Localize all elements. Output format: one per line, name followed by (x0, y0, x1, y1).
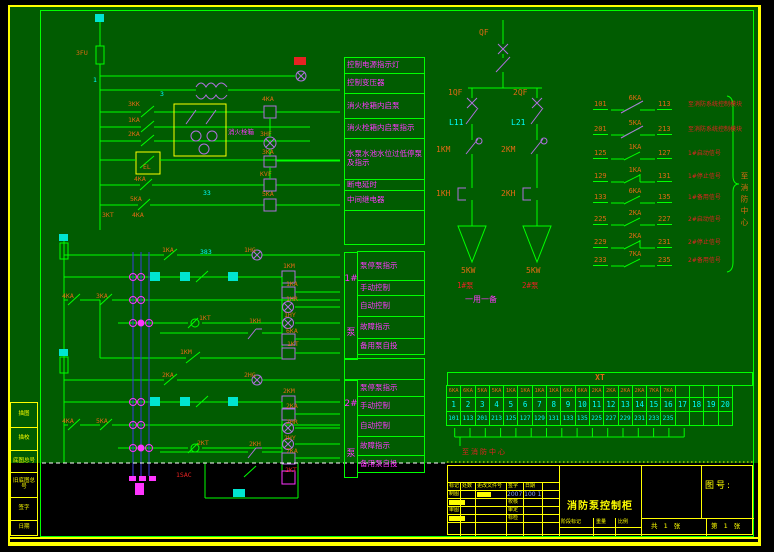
kw2-label: 5KW (526, 266, 540, 275)
terminal-number: 8 (546, 397, 561, 412)
ladder-label: 6KA (286, 328, 298, 335)
terminal-column: 5KA 4 213 (489, 386, 504, 426)
terminal-wire: 127 (517, 411, 532, 426)
terminal-column: 18 (689, 386, 704, 426)
pump2-number: 2# (344, 399, 357, 409)
terminal-column: 6KA 2 113 (460, 386, 475, 426)
terminal-number: 14 (632, 397, 647, 412)
ladder-label: 33 (203, 190, 211, 197)
terminal-column: 20 (718, 386, 733, 426)
wire-number-right: 113 (657, 100, 672, 110)
terminal-wire: 125 (503, 411, 518, 426)
wire-number-left: 101 (593, 100, 608, 110)
ladder-label: 2HR (286, 419, 298, 426)
tb-checker: 校核 (508, 500, 518, 505)
terminal-number: 12 (603, 397, 618, 412)
ladder-label: 7KA (286, 448, 298, 455)
terminal-column: 2KA 11 225 (589, 386, 604, 426)
terminal-number: 17 (675, 397, 690, 412)
contact-symbol (611, 172, 655, 186)
terminal-wire: 101 (446, 411, 461, 426)
ladder-label: 5KA (96, 418, 108, 425)
drawing-title: 消防泵控制柜 (560, 497, 640, 512)
ladder-label: 3KA (96, 293, 108, 300)
terminal-column: 5KA 3 201 (475, 386, 490, 426)
border-right (758, 5, 761, 545)
terminal-wire: 231 (632, 411, 647, 426)
terminal-number: 9 (560, 397, 575, 412)
wire-number-right: 227 (657, 215, 672, 225)
terminal-wire: 235 (660, 411, 675, 426)
contact-note: 2#停止信号 (688, 239, 746, 246)
function-row (344, 210, 425, 245)
terminal-wire: 113 (460, 411, 475, 426)
border-top (8, 5, 761, 7)
contact-note: 1#停止信号 (688, 173, 746, 180)
margin-cell: 描校 (10, 427, 38, 451)
terminal-wire: 129 (532, 411, 547, 426)
pump2-unit: 泵 (346, 446, 355, 459)
duty-standby-note: 一用一备 (465, 294, 497, 305)
ladder-label: 2KA (128, 131, 140, 138)
kw1-label: 5KW (461, 266, 475, 275)
contact-note: 1#备用信号 (688, 194, 746, 201)
contact-note: 至消防系统控制模块 (688, 126, 746, 133)
tb-header-mark: 标记 (449, 484, 459, 489)
contact-row: 201 5KA 213 至消防系统控制模块 (593, 123, 753, 143)
wire-number-right: 231 (657, 238, 672, 248)
tb-standard: 标检 (508, 516, 518, 521)
ladder-label: 1HR (286, 296, 298, 303)
terminal-column: 6KA 1 101 (446, 386, 461, 426)
wire-number-left: 129 (593, 172, 608, 182)
margin-cell: 日期 (10, 520, 38, 536)
tb-approve: 审定 (508, 508, 518, 513)
terminal-column: 2KA 13 229 (618, 386, 633, 426)
tb-date-value: 2007 100 1 (507, 491, 541, 498)
ladder-label: 1KH (249, 318, 261, 325)
tb-weight: 重量 (596, 520, 606, 525)
qf-label: QF (479, 28, 489, 37)
contact-symbol (611, 125, 655, 139)
contact-symbol (611, 193, 655, 207)
kh1-label: 1KH (436, 189, 450, 198)
terminal-number: 5 (503, 397, 518, 412)
pump2-label: 2#泵 (522, 280, 539, 291)
tb-header-count: 处数 (462, 484, 472, 489)
wire-number-right: 127 (657, 149, 672, 159)
function-row: 中间继电器 (344, 190, 425, 211)
kh2-label: 2KH (501, 189, 515, 198)
border-bottom-1 (8, 537, 761, 539)
ladder-label: 2KH (249, 441, 261, 448)
ladder-label: 1KT (199, 315, 211, 322)
wire-number-left: 229 (593, 238, 608, 248)
ladder-label: 1HY (284, 312, 296, 319)
l11-label: L11 (449, 118, 463, 127)
contact-note: 2#启动信号 (688, 216, 746, 223)
function-row: 自动控制 (357, 415, 425, 437)
tb-stage: 阶段标记 (561, 520, 581, 525)
contact-symbol (611, 256, 655, 270)
tb-header-sign: 签字 (508, 484, 518, 489)
wire-number-left: 201 (593, 125, 608, 135)
pump2-rows: 泵停泵指示手动控制自动控制故障指示备用泵自投 (357, 380, 425, 473)
contact-row: 125 1KA 127 1#启动信号 (593, 147, 753, 167)
to-fire-center-label: 至消防中心 (739, 172, 750, 230)
ladder-label: 1SAC (176, 472, 192, 479)
qf1-label: 1QF (448, 88, 462, 97)
contact-note: 至消防系统控制模块 (688, 101, 746, 108)
terminal-strip-title: XT (447, 372, 753, 386)
ladder-label: 4KA (134, 176, 146, 183)
function-row: 控制电源指示灯 (344, 57, 425, 74)
wire-number-left: 125 (593, 149, 608, 159)
pump1-label: 1#泵 (457, 280, 474, 291)
terminal-column: 1KA 8 131 (546, 386, 561, 426)
wire-number-right: 135 (657, 193, 672, 203)
contact-note: 2#备用信号 (688, 257, 746, 264)
function-row: 消火栓箱内启泵指示 (344, 118, 425, 139)
km1-label: 1KM (436, 145, 450, 154)
ladder-label: 1KA (286, 281, 298, 288)
ladder-label: 消火栓箱 (228, 129, 254, 136)
terminal-column: 1KA 7 129 (532, 386, 547, 426)
terminal-wire: 131 (546, 411, 561, 426)
terminal-wire: 233 (646, 411, 661, 426)
terminal-wire (689, 411, 704, 426)
function-row: 手动控制 (357, 396, 425, 416)
function-row: 水泵水池水位过低停泵及指示 (344, 138, 425, 180)
ladder-label: 2HY (284, 435, 296, 442)
pump1-number: 1# (344, 274, 357, 284)
terminal-column: 6KA 10 135 (575, 386, 590, 426)
wire-number-right: 131 (657, 172, 672, 182)
ladder-label: 3FU (76, 50, 88, 57)
function-row: 泵停泵指示 (357, 251, 425, 281)
contact-symbol (611, 149, 655, 163)
function-panel-gap (344, 358, 425, 380)
function-row: 控制变压器 (344, 73, 425, 94)
title-block: 标记 处数 更改文件号 签字 日期 制图 2007 100 1 校核 审图 审定… (447, 465, 753, 535)
terminal-number: 1 (446, 397, 461, 412)
function-row: 泵停泵指示 (357, 379, 425, 397)
terminal-number: 6 (517, 397, 532, 412)
function-row: 备用泵自投 (357, 338, 425, 355)
terminal-column: 17 (675, 386, 690, 426)
terminal-number: 11 (589, 397, 604, 412)
pump1-rows: 泵停泵指示手动控制自动控制故障指示备用泵自投 (357, 252, 425, 355)
ladder-label: 1KA (162, 247, 174, 254)
ladder-label: 4KA (62, 293, 74, 300)
ladder-label: 3KA (262, 149, 274, 156)
margin-cell: 底图总号 (10, 450, 38, 473)
ladder-label: 4KA (132, 212, 144, 219)
ladder-label: 5KA (262, 191, 274, 198)
ladder-label: 2HG (244, 372, 256, 379)
ladder-label: 2KA (162, 372, 174, 379)
pump1-section: 1# 泵 泵停泵指示手动控制自动控制故障指示备用泵自投 (344, 252, 425, 360)
xt-to-fire-center-label: 至消防中心 (462, 447, 507, 457)
ladder-label: 4KA (62, 418, 74, 425)
margin-cell: 签字 (10, 497, 38, 521)
terminal-number: 20 (718, 397, 733, 412)
ladder-label: 5KA (130, 196, 142, 203)
ladder-label: 3 (160, 91, 164, 98)
terminal-wire (675, 411, 690, 426)
ladder-label: 383 (200, 249, 212, 256)
terminal-strip-table: XT 6KA 1 101 6KA 2 113 5KA 3 201 (447, 372, 753, 426)
pump1-unit: 泵 (346, 325, 355, 338)
function-row: 手动控制 (357, 280, 425, 296)
wire-number-right: 235 (657, 256, 672, 266)
ladder-label: 2KT (285, 467, 297, 474)
function-row: 故障指示 (357, 316, 425, 339)
function-panel-top: 控制电源指示灯控制变压器消火栓箱内启泵消火栓箱内启泵指示水泵水池水位过低停泵及指… (344, 58, 425, 245)
pump2-section: 2# 泵 泵停泵指示手动控制自动控制故障指示备用泵自投 (344, 380, 425, 478)
terminal-wire: 213 (489, 411, 504, 426)
wire-number-left: 233 (593, 256, 608, 266)
terminal-wire: 227 (603, 411, 618, 426)
terminal-wire: 133 (560, 411, 575, 426)
km2-label: 2KM (501, 145, 515, 154)
contact-symbol (611, 215, 655, 229)
ladder-label: 3KT (102, 212, 114, 219)
ladder-label: 3KK (128, 101, 140, 108)
terminal-number: 3 (475, 397, 490, 412)
function-row: 故障指示 (357, 436, 425, 456)
terminal-wire: 229 (618, 411, 633, 426)
wire-number-left: 133 (593, 193, 608, 203)
drawing-number-label: 图号: (705, 478, 732, 491)
terminal-number: 13 (618, 397, 633, 412)
terminal-column: 7KA 16 235 (660, 386, 675, 426)
contact-note: 1#启动信号 (688, 150, 746, 157)
tb-header-changefile: 更改文件号 (477, 484, 502, 489)
tb-scale: 比例 (618, 520, 628, 525)
terminal-number: 10 (575, 397, 590, 412)
cad-sheet: 3FU133KK1KA2KA消火栓箱EL4KA3HF3KAKVF5KA333KT… (0, 0, 774, 552)
tb-review: 审图 (449, 508, 459, 513)
ladder-label: 1KT (287, 341, 299, 348)
ladder-label: 2KM (283, 388, 295, 395)
ladder-label: EL (143, 164, 151, 171)
ladder-label: KVF (260, 171, 272, 178)
terminal-column: 2KA 12 227 (603, 386, 618, 426)
l21-label: L21 (511, 118, 525, 127)
contact-row: 233 7KA 235 2#备用信号 (593, 254, 753, 274)
terminal-number: 19 (703, 397, 718, 412)
terminal-column: 1KA 6 127 (517, 386, 532, 426)
ladder-label: 1HG (244, 247, 256, 254)
contact-row: 101 6KA 113 至消防系统控制模块 (593, 98, 753, 118)
terminal-number: 16 (660, 397, 675, 412)
terminal-wire (703, 411, 718, 426)
tb-drafter: 制图 (449, 492, 459, 497)
terminal-wire: 225 (589, 411, 604, 426)
terminal-column: 6KA 9 133 (560, 386, 575, 426)
margin-cell: 旧底图总号 (10, 472, 38, 498)
function-row: 自动控制 (357, 295, 425, 317)
tb-header-date: 日期 (525, 484, 535, 489)
wire-number-right: 213 (657, 125, 672, 135)
wire-number-left: 225 (593, 215, 608, 225)
ladder-label: 1KM (180, 349, 192, 356)
qf2-label: 2QF (513, 88, 527, 97)
function-row: 消火栓箱内启泵 (344, 93, 425, 119)
tb-sheet-number: 第 1 张 (711, 520, 742, 530)
terminal-number: 2 (460, 397, 475, 412)
ladder-label: 1KM (283, 263, 295, 270)
terminal-column: 19 (703, 386, 718, 426)
ladder-label: 2KA (286, 403, 298, 410)
ladder-label: 1KA (128, 117, 140, 124)
terminal-column: 1KA 5 125 (503, 386, 518, 426)
contact-row: 225 2KA 227 2#启动信号 (593, 213, 753, 233)
terminal-wire (718, 411, 733, 426)
terminal-wire: 135 (575, 411, 590, 426)
pump1-tag: 1# 泵 (344, 252, 358, 360)
terminal-number: 4 (489, 397, 504, 412)
terminal-columns: 6KA 1 101 6KA 2 113 5KA 3 201 5KA (447, 386, 753, 426)
terminal-number: 15 (646, 397, 661, 412)
border-bottom-2 (8, 542, 761, 546)
terminal-column: 2KA 14 231 (632, 386, 647, 426)
margin-cell: 描图 (10, 402, 38, 428)
ladder-label: 4KA (262, 96, 274, 103)
function-row: 备用泵自投 (357, 455, 425, 473)
terminal-column: 7KA 15 233 (646, 386, 661, 426)
ladder-label: 3HF (260, 131, 272, 138)
pump2-tag: 2# 泵 (344, 380, 358, 478)
ladder-label: 2KT (197, 440, 209, 447)
terminal-wire: 201 (475, 411, 490, 426)
contact-symbol (611, 100, 655, 114)
ladder-label: 1 (93, 77, 97, 84)
tb-total-sheets: 共 1 张 (651, 520, 682, 530)
contact-row: 133 6KA 135 1#备用信号 (593, 191, 753, 211)
terminal-number: 18 (689, 397, 704, 412)
terminal-number: 7 (532, 397, 547, 412)
